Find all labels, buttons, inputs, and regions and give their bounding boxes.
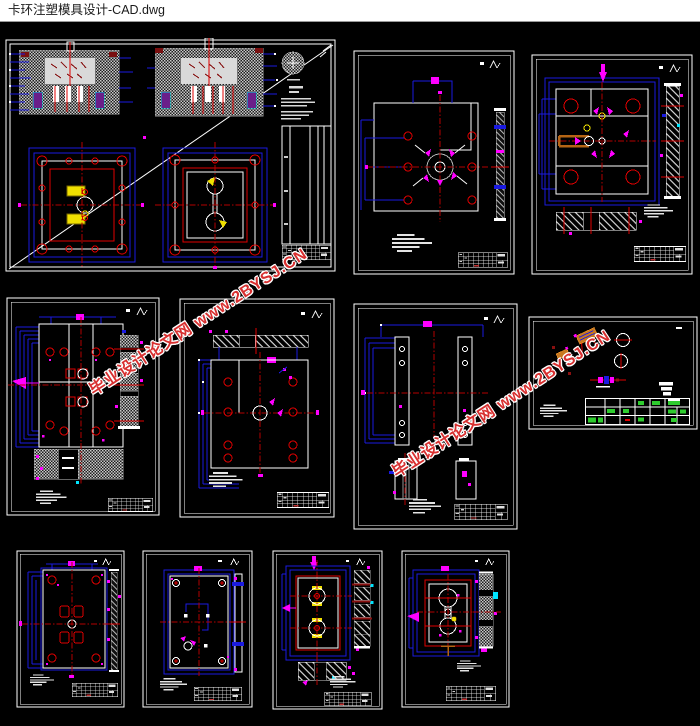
- parts-list-table: [282, 126, 331, 244]
- side-section-strip: [352, 566, 374, 651]
- technical-notes: [540, 405, 567, 417]
- plate-drawing-graphic: [272, 550, 383, 710]
- technical-notes: [392, 234, 432, 252]
- sheet-core-plate[interactable]: [272, 550, 383, 710]
- side-section-strip: [473, 572, 501, 653]
- technical-notes: [36, 490, 66, 504]
- title-block: [277, 492, 329, 508]
- surface-finish-icon: [231, 559, 239, 565]
- sheet-cavity-retainer-plate[interactable]: [531, 54, 693, 275]
- plate-drawing-graphic: [6, 297, 160, 516]
- plate-drawing-graphic: [16, 550, 125, 708]
- title-block: [454, 504, 507, 520]
- title-block: [446, 686, 496, 701]
- sheet-core-retainer-plate[interactable]: [6, 297, 160, 516]
- plate-drawing-graphic: [142, 550, 253, 708]
- bottom-section-view: [556, 207, 642, 235]
- title-block: [108, 498, 153, 512]
- sheet-support-plate[interactable]: [179, 298, 335, 518]
- parameter-table: [585, 398, 690, 425]
- part-view-small: [555, 346, 573, 364]
- surface-finish-icon: [670, 65, 680, 72]
- plate-drawing-graphic: [401, 550, 510, 708]
- sheet-cavity-plate[interactable]: [401, 550, 510, 708]
- title-block: [72, 683, 118, 697]
- sheet-snap-ring-part[interactable]: [528, 316, 698, 430]
- sheet-assembly-drawing[interactable]: [5, 38, 337, 274]
- technical-notes: [30, 675, 54, 686]
- technical-notes: [209, 472, 243, 487]
- bottom-section-view: [34, 443, 123, 485]
- stacked-label-bars: [659, 382, 673, 396]
- section-view-a: [9, 42, 133, 114]
- file-title: 卡环注塑模具设计-CAD.dwg: [8, 3, 165, 17]
- plate-drawing-graphic: [353, 303, 518, 530]
- surface-finish-icon: [103, 559, 111, 565]
- surface-finish-icon: [490, 61, 500, 68]
- sheet-spacer-blocks[interactable]: [353, 303, 518, 530]
- title-block: [194, 687, 242, 701]
- gate-detail: [282, 52, 304, 81]
- assembly-drawing-graphic: [5, 38, 337, 274]
- plate-drawing-graphic: [531, 54, 693, 275]
- cad-canvas[interactable]: 毕业设计论文网 www.2BYSJ.CN 毕业设计论文网 www.2BYSJ.C…: [0, 22, 700, 726]
- title-block: [325, 692, 372, 706]
- side-section-strip: [114, 330, 144, 429]
- technical-notes: [457, 661, 481, 672]
- assembly-title-block: [282, 245, 331, 260]
- title-block: [634, 246, 686, 262]
- surface-finish-icon: [357, 559, 365, 565]
- technical-notes: [409, 499, 441, 513]
- top-section-view: [209, 328, 308, 354]
- surface-finish-icon: [312, 311, 322, 318]
- surface-finish-icon: [486, 559, 494, 565]
- sheet-fixed-clamp-plate[interactable]: [353, 50, 515, 275]
- plate-drawing-graphic: [353, 50, 515, 275]
- part-drawing-graphic: [528, 316, 698, 430]
- bottom-section-views: [389, 453, 476, 507]
- part-view-iso: [573, 325, 603, 352]
- surface-finish-icon: [137, 308, 147, 315]
- window-title-bar[interactable]: 卡环注塑模具设计-CAD.dwg: [0, 0, 700, 22]
- plan-view-fixed-half: [155, 142, 276, 269]
- title-notes: [281, 86, 315, 120]
- side-section-strip: [235, 574, 242, 672]
- cad-viewer-window: 卡环注塑模具设计-CAD.dwg: [0, 0, 700, 726]
- technical-notes: [644, 204, 673, 217]
- section-assembly-small: [590, 376, 626, 388]
- side-section-strip: [111, 572, 117, 670]
- plan-view-moving-half: [18, 142, 144, 268]
- plate-drawing-graphic: [179, 298, 335, 518]
- title-block: [458, 253, 508, 268]
- section-view-b: [147, 38, 278, 116]
- sheet-ejector-retainer-plate[interactable]: [142, 550, 253, 708]
- technical-notes: [160, 678, 187, 690]
- surface-finish-icon: [494, 316, 504, 323]
- sheet-ejector-plate[interactable]: [16, 550, 125, 708]
